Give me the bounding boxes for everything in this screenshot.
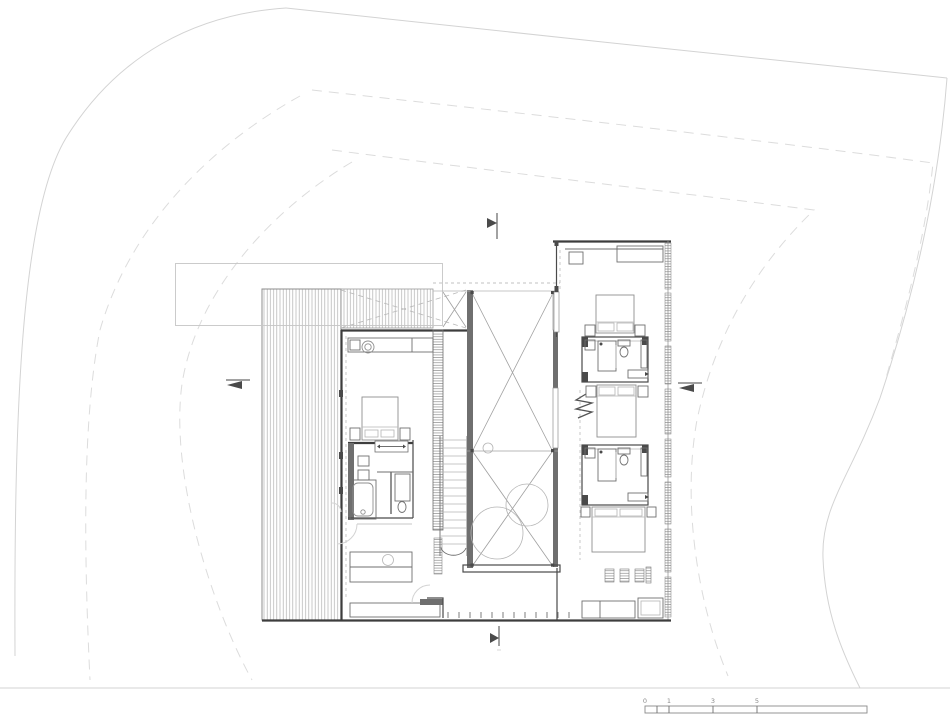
louvre-segment [665, 243, 671, 289]
scale-label-5: 5 [755, 697, 759, 705]
scale-label-3: 3 [711, 697, 715, 705]
deck-roof-band [341, 289, 433, 328]
hall-joinery-wall [433, 330, 443, 530]
scale-label-0: 0 [643, 697, 647, 705]
shower-head [600, 451, 603, 454]
wall-post [339, 390, 343, 397]
louvre-segment [665, 293, 671, 341]
louvre-segment [665, 482, 671, 524]
column [551, 564, 554, 567]
shower-head [600, 343, 603, 346]
column [555, 241, 559, 246]
void-east-wall-upper [553, 330, 558, 388]
void-window [553, 388, 558, 448]
column [471, 449, 474, 452]
column [555, 286, 559, 292]
louvre-segment [665, 389, 671, 434]
sheet-background [0, 0, 950, 714]
louvre-segment [665, 577, 671, 617]
stool [620, 569, 629, 582]
bench-step [420, 599, 443, 605]
scale-label-1: 1 [667, 697, 671, 705]
east-louvre-wall [665, 241, 671, 620]
wall-poche [582, 372, 588, 382]
column [551, 449, 554, 452]
louvre-segment [665, 346, 671, 384]
floor-plan-canvas: 0 1 3 5 [0, 0, 950, 714]
stool [605, 569, 614, 582]
west-window [554, 292, 559, 332]
column [471, 564, 474, 567]
void-east-wall-lower [553, 448, 558, 567]
wall-post [339, 452, 343, 459]
wall-poche [582, 495, 588, 505]
stool-bench [605, 567, 651, 583]
side-panel [646, 567, 651, 583]
stool [635, 569, 644, 582]
wall-post [339, 487, 343, 494]
deck-boarding [262, 289, 341, 620]
louvre-segment [665, 439, 671, 477]
stair-screen-lower [434, 538, 442, 574]
louvre-segment [665, 529, 671, 572]
column [471, 291, 474, 294]
